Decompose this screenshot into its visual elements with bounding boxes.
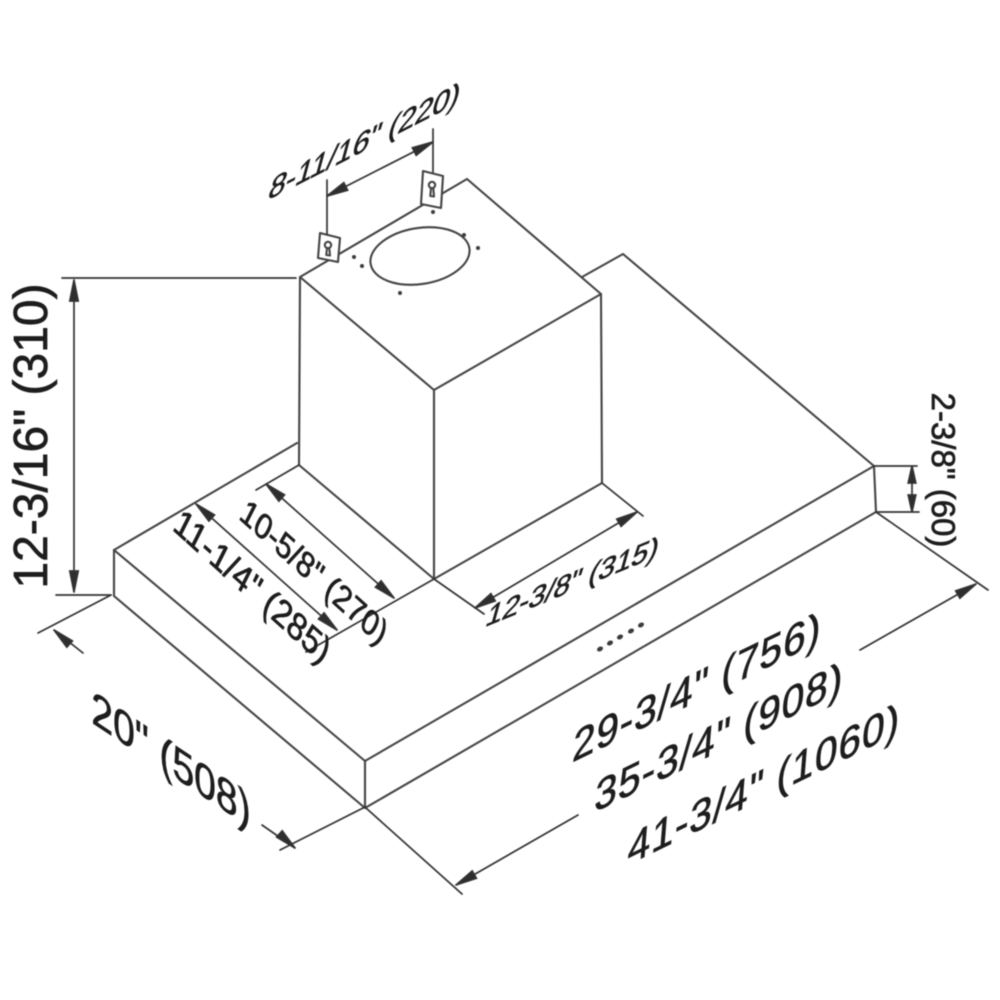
svg-text:2-3/8" (60): 2-3/8" (60) <box>925 393 962 548</box>
svg-text:12-3/8" (315): 12-3/8" (315) <box>482 529 663 634</box>
svg-text:20" (508): 20" (508) <box>91 679 250 837</box>
svg-text:12-3/16" (310): 12-3/16" (310) <box>5 283 58 588</box>
